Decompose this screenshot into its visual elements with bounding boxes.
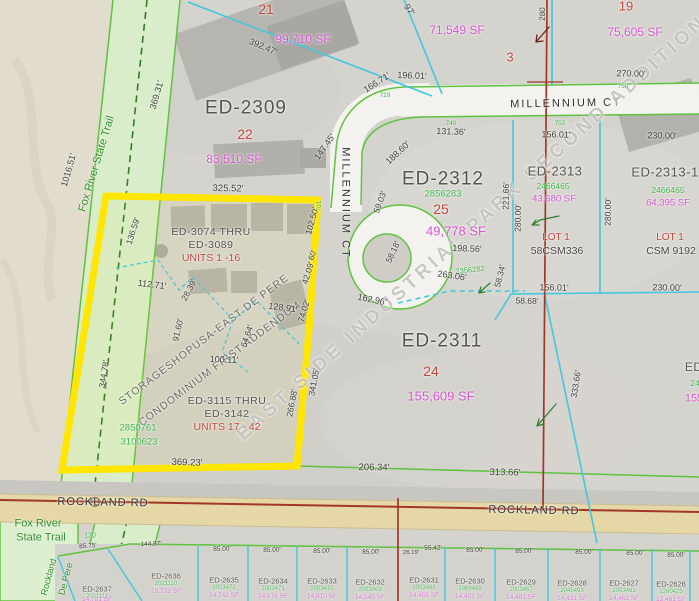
de-pere-boundary-label: De Pere bbox=[57, 562, 74, 596]
parcel-ed-2312-id: ED-2312 bbox=[402, 170, 484, 189]
dim-144-87: 144.87' bbox=[140, 541, 161, 548]
parcel-ed-2313-id: ED-2313 bbox=[528, 165, 583, 178]
dim-156-01-north: 156.01' bbox=[541, 130, 570, 140]
dim-325-52: 325.52' bbox=[212, 184, 243, 194]
dim-85-00-b: 85.00' bbox=[263, 548, 281, 555]
area-83510-sf: 83,510 SF bbox=[206, 153, 261, 165]
lot-1-csm336: LOT 1 bbox=[542, 233, 570, 243]
area-49778-sf: 49,778 SF bbox=[426, 225, 486, 238]
fox-river-trail-label-south-line2: State Trail bbox=[16, 533, 66, 544]
dim-128-91: 128.91' bbox=[268, 302, 298, 314]
doc-partial-right-edge: 24 bbox=[690, 379, 699, 388]
parcel-ed-2629-id: ED-2629 bbox=[506, 578, 536, 586]
dim-230-00-south: 230.00' bbox=[652, 283, 681, 293]
parcel-ed-2630-sf: 14,451 SF bbox=[455, 594, 485, 601]
parcel-ed-2637-id: ED-2637 bbox=[82, 585, 112, 593]
dim-280-00-a: 280.00' bbox=[514, 204, 523, 232]
rockland-rd-label-right: ROCKLAND RD bbox=[488, 505, 579, 518]
dim-85-00-c: 85.00' bbox=[313, 549, 331, 556]
condo-plat-label-line1: STORAGESHOPUSA-EAST DE PERE bbox=[117, 273, 290, 407]
parcel-ed-2628-sf: 14,431 SF bbox=[557, 596, 587, 601]
condo-units-ed-3074-thru: ED-3074 THRU bbox=[171, 227, 250, 238]
parcel-ed-2631-sf: 14,455 SF bbox=[409, 593, 439, 600]
parcel-id-partial-right-edge: ED- bbox=[685, 361, 699, 373]
dim-59-03: 59.03' bbox=[372, 190, 388, 214]
dim-85-75: 85.75' bbox=[79, 543, 97, 550]
parcel-ed-2628-id: ED-2628 bbox=[557, 579, 587, 587]
area-43680-sf: 43,680 SF bbox=[532, 194, 576, 204]
dim-26-19: 26.19' bbox=[403, 550, 419, 556]
dim-85-00-a: 85.00' bbox=[213, 547, 231, 554]
csm-9192: CSM 9192 bbox=[646, 246, 696, 257]
dim-230-00-north: 230.00' bbox=[647, 131, 676, 141]
dim-188-60: 188.60' bbox=[384, 140, 412, 167]
parcel-ed-2633-doc: 2003470 bbox=[310, 586, 333, 592]
address-752: 752 bbox=[555, 121, 566, 128]
area-71549-sf: 71,549 SF bbox=[429, 24, 484, 36]
parcel-ed-2635-sf: 14,741 SF bbox=[209, 593, 239, 600]
doc-2850761: 2850761 bbox=[120, 423, 157, 433]
dim-1016-51: 1016.51' bbox=[60, 152, 78, 187]
parcel-ed-2634-id: ED-2634 bbox=[258, 577, 288, 585]
area-155609-sf: 155,609 SF bbox=[407, 390, 474, 403]
parcel-ed-2627-sf: 14,461 SF bbox=[609, 596, 639, 601]
parcel-ed-2311-id: ED-2311 bbox=[402, 332, 483, 351]
dim-102-50: 102.50' bbox=[304, 207, 320, 236]
parcel-ed-2633-id: ED-2633 bbox=[307, 577, 337, 585]
parcel-ed-2626-doc: 2260425 bbox=[659, 589, 682, 595]
lot-21: 21 bbox=[258, 2, 274, 16]
dim-97: 97' bbox=[402, 3, 416, 18]
units-17-42-label: UNITS 17 - 42 bbox=[193, 422, 260, 433]
parcel-ed-2635-doc: 2003472 bbox=[212, 585, 235, 591]
dim-100-11: 100.11' bbox=[210, 355, 239, 365]
doc-3100623: 3100623 bbox=[121, 437, 158, 447]
csm-58csm336: 58CSM336 bbox=[531, 246, 584, 257]
parcel-ed-2633-sf: 14,810 SF bbox=[307, 594, 337, 601]
rockland-rd-label-left: ROCKLAND RD bbox=[57, 497, 148, 510]
dim-333-66: 333.66' bbox=[570, 370, 583, 399]
parcel-ed-2629-sf: 14,481 SF bbox=[506, 595, 536, 601]
dim-221-66: 221.66' bbox=[502, 182, 511, 210]
dim-369-31: 369.31' bbox=[149, 80, 166, 111]
parcel-ed-2630-doc: 1969459 bbox=[458, 586, 481, 592]
dim-85-00-d: 85.00' bbox=[362, 550, 380, 557]
dim-42-09: 42.09' bbox=[301, 261, 316, 285]
parcel-ed-2637-sf: 14,781 SF bbox=[82, 597, 112, 601]
parcel-ed-2636-doc: 2021110 bbox=[155, 581, 177, 587]
dim-270-00: 270.00' bbox=[616, 69, 645, 79]
dim-85-00-g: 85.00' bbox=[575, 550, 593, 557]
dim-85-00-f: 85.00' bbox=[515, 549, 533, 556]
doc-2466465-a: 2466465 bbox=[536, 182, 569, 191]
parcel-ed-2634-doc: 2003471 bbox=[261, 586, 284, 592]
lot-3: 3 bbox=[506, 51, 513, 64]
dim-280-00-b: 280.00' bbox=[604, 198, 613, 226]
parcel-ed-2632-id: ED-2632 bbox=[355, 578, 385, 586]
lot-25: 25 bbox=[433, 202, 449, 216]
area-64395-sf: 64,395 SF bbox=[646, 198, 690, 208]
dim-55-42: 55.42' bbox=[424, 546, 442, 553]
dim-112-71: 112.71' bbox=[137, 279, 166, 291]
parcel-ed-2627-doc: 2003461 bbox=[612, 588, 635, 594]
dim-131-36: 131.36' bbox=[436, 127, 466, 137]
parcel-map-canvas[interactable]: MILLENNIUM CTMILLENNIUM CTROCKLAND RDROC… bbox=[0, 0, 699, 601]
dim-156-01-south: 156.01' bbox=[539, 283, 568, 293]
dim-392-47: 392.47' bbox=[248, 37, 278, 57]
dim-58-34: 58.34' bbox=[493, 264, 507, 288]
parcel-ed-2629-doc: 2003467 bbox=[509, 587, 532, 593]
units-1-16-label: UNITS 1 -16 bbox=[182, 253, 240, 264]
parcel-ed-2626-id: ED-2626 bbox=[656, 580, 686, 588]
millennium-ct-label-vertical: MILLENNIUM CT bbox=[340, 147, 351, 259]
parcel-ed-2636-id: ED-2636 bbox=[151, 572, 181, 580]
parcel-ed-2631-id: ED-2631 bbox=[409, 576, 439, 584]
parcel-ed-2632-sf: 14,545 SF bbox=[355, 595, 385, 601]
dim-91-60: 91.60' bbox=[171, 318, 184, 342]
fox-river-trail-label-south-line1: Fox River bbox=[14, 519, 61, 530]
dim-206-34: 206.34' bbox=[358, 463, 389, 473]
dim-60: 60' bbox=[308, 249, 319, 261]
parcel-ed-2634-sf: 14,876 SF bbox=[258, 594, 288, 601]
rockland-boundary-label: Rockland bbox=[40, 558, 58, 597]
dim-147-45: 147.45' bbox=[313, 132, 337, 161]
parcel-ed-2627-id: ED-2627 bbox=[609, 579, 639, 587]
parcel-ed-2632-doc: 2003469 bbox=[358, 587, 381, 593]
dim-58-68: 58.68' bbox=[515, 296, 538, 305]
parcel-ed-2309-id: ED-2309 bbox=[205, 99, 287, 118]
parcel-ed-2626-sf: 13,481 SF bbox=[656, 597, 686, 601]
dim-85-00-e: 85.00' bbox=[466, 548, 484, 555]
doc-2856283: 2856283 bbox=[425, 189, 462, 199]
fox-river-state-trail-label: Fox River State Trail bbox=[77, 115, 117, 214]
lot-19: 19 bbox=[619, 0, 633, 13]
dim-198-56: 198.56' bbox=[452, 244, 482, 254]
parcel-ed-2636-sf: 19,731 SF bbox=[151, 589, 181, 596]
dim-28-39: 28.39' bbox=[180, 278, 198, 302]
dim-369-23: 369.23' bbox=[171, 458, 202, 469]
parcel-ed-2628-doc: 2045493 bbox=[560, 588, 583, 594]
dim-280-vertical: 280 bbox=[539, 7, 547, 20]
dim-263-06: 263.06' bbox=[437, 270, 467, 283]
condo-units-ed-3115-thru: ED-3115 THRU bbox=[188, 396, 267, 407]
dim-344-78: 344.78' bbox=[98, 360, 111, 389]
address-750: 750 bbox=[618, 84, 629, 91]
parcel-ed-2635-id: ED-2635 bbox=[209, 576, 239, 584]
area-99710-sf: 99,710 SF bbox=[275, 33, 330, 45]
dim-85-00-h: 85.00' bbox=[626, 551, 644, 558]
map-labels-layer: MILLENNIUM CTMILLENNIUM CTROCKLAND RDROC… bbox=[0, 0, 699, 601]
dim-85-00-i: 85.00' bbox=[667, 553, 685, 560]
dim-313-66: 313.66' bbox=[489, 468, 520, 478]
parcel-ed-2313-1-id: ED-2313-1 bbox=[631, 166, 698, 179]
lot-24: 24 bbox=[423, 364, 439, 378]
condo-units-ed-3142: ED-3142 bbox=[205, 409, 250, 420]
area-partial-right-edge: 155 bbox=[685, 394, 699, 405]
parcel-ed-2630-id: ED-2630 bbox=[455, 577, 485, 585]
dim-58-18: 58.18' bbox=[384, 240, 401, 264]
lot-1-csm9192: LOT 1 bbox=[656, 233, 684, 243]
address-120: 120 bbox=[84, 533, 96, 540]
dim-196-01: 196.01' bbox=[397, 71, 427, 81]
doc-2466465-b: 2466465 bbox=[651, 186, 684, 195]
condo-units-ed-3089: ED-3089 bbox=[189, 240, 234, 251]
parcel-ed-2631-doc: 2003468 bbox=[412, 585, 435, 591]
address-719: 719 bbox=[380, 93, 391, 100]
lot-22: 22 bbox=[237, 127, 253, 141]
dim-136-59: 136.59' bbox=[125, 217, 142, 246]
area-75605-sf: 75,605 SF bbox=[607, 26, 662, 38]
